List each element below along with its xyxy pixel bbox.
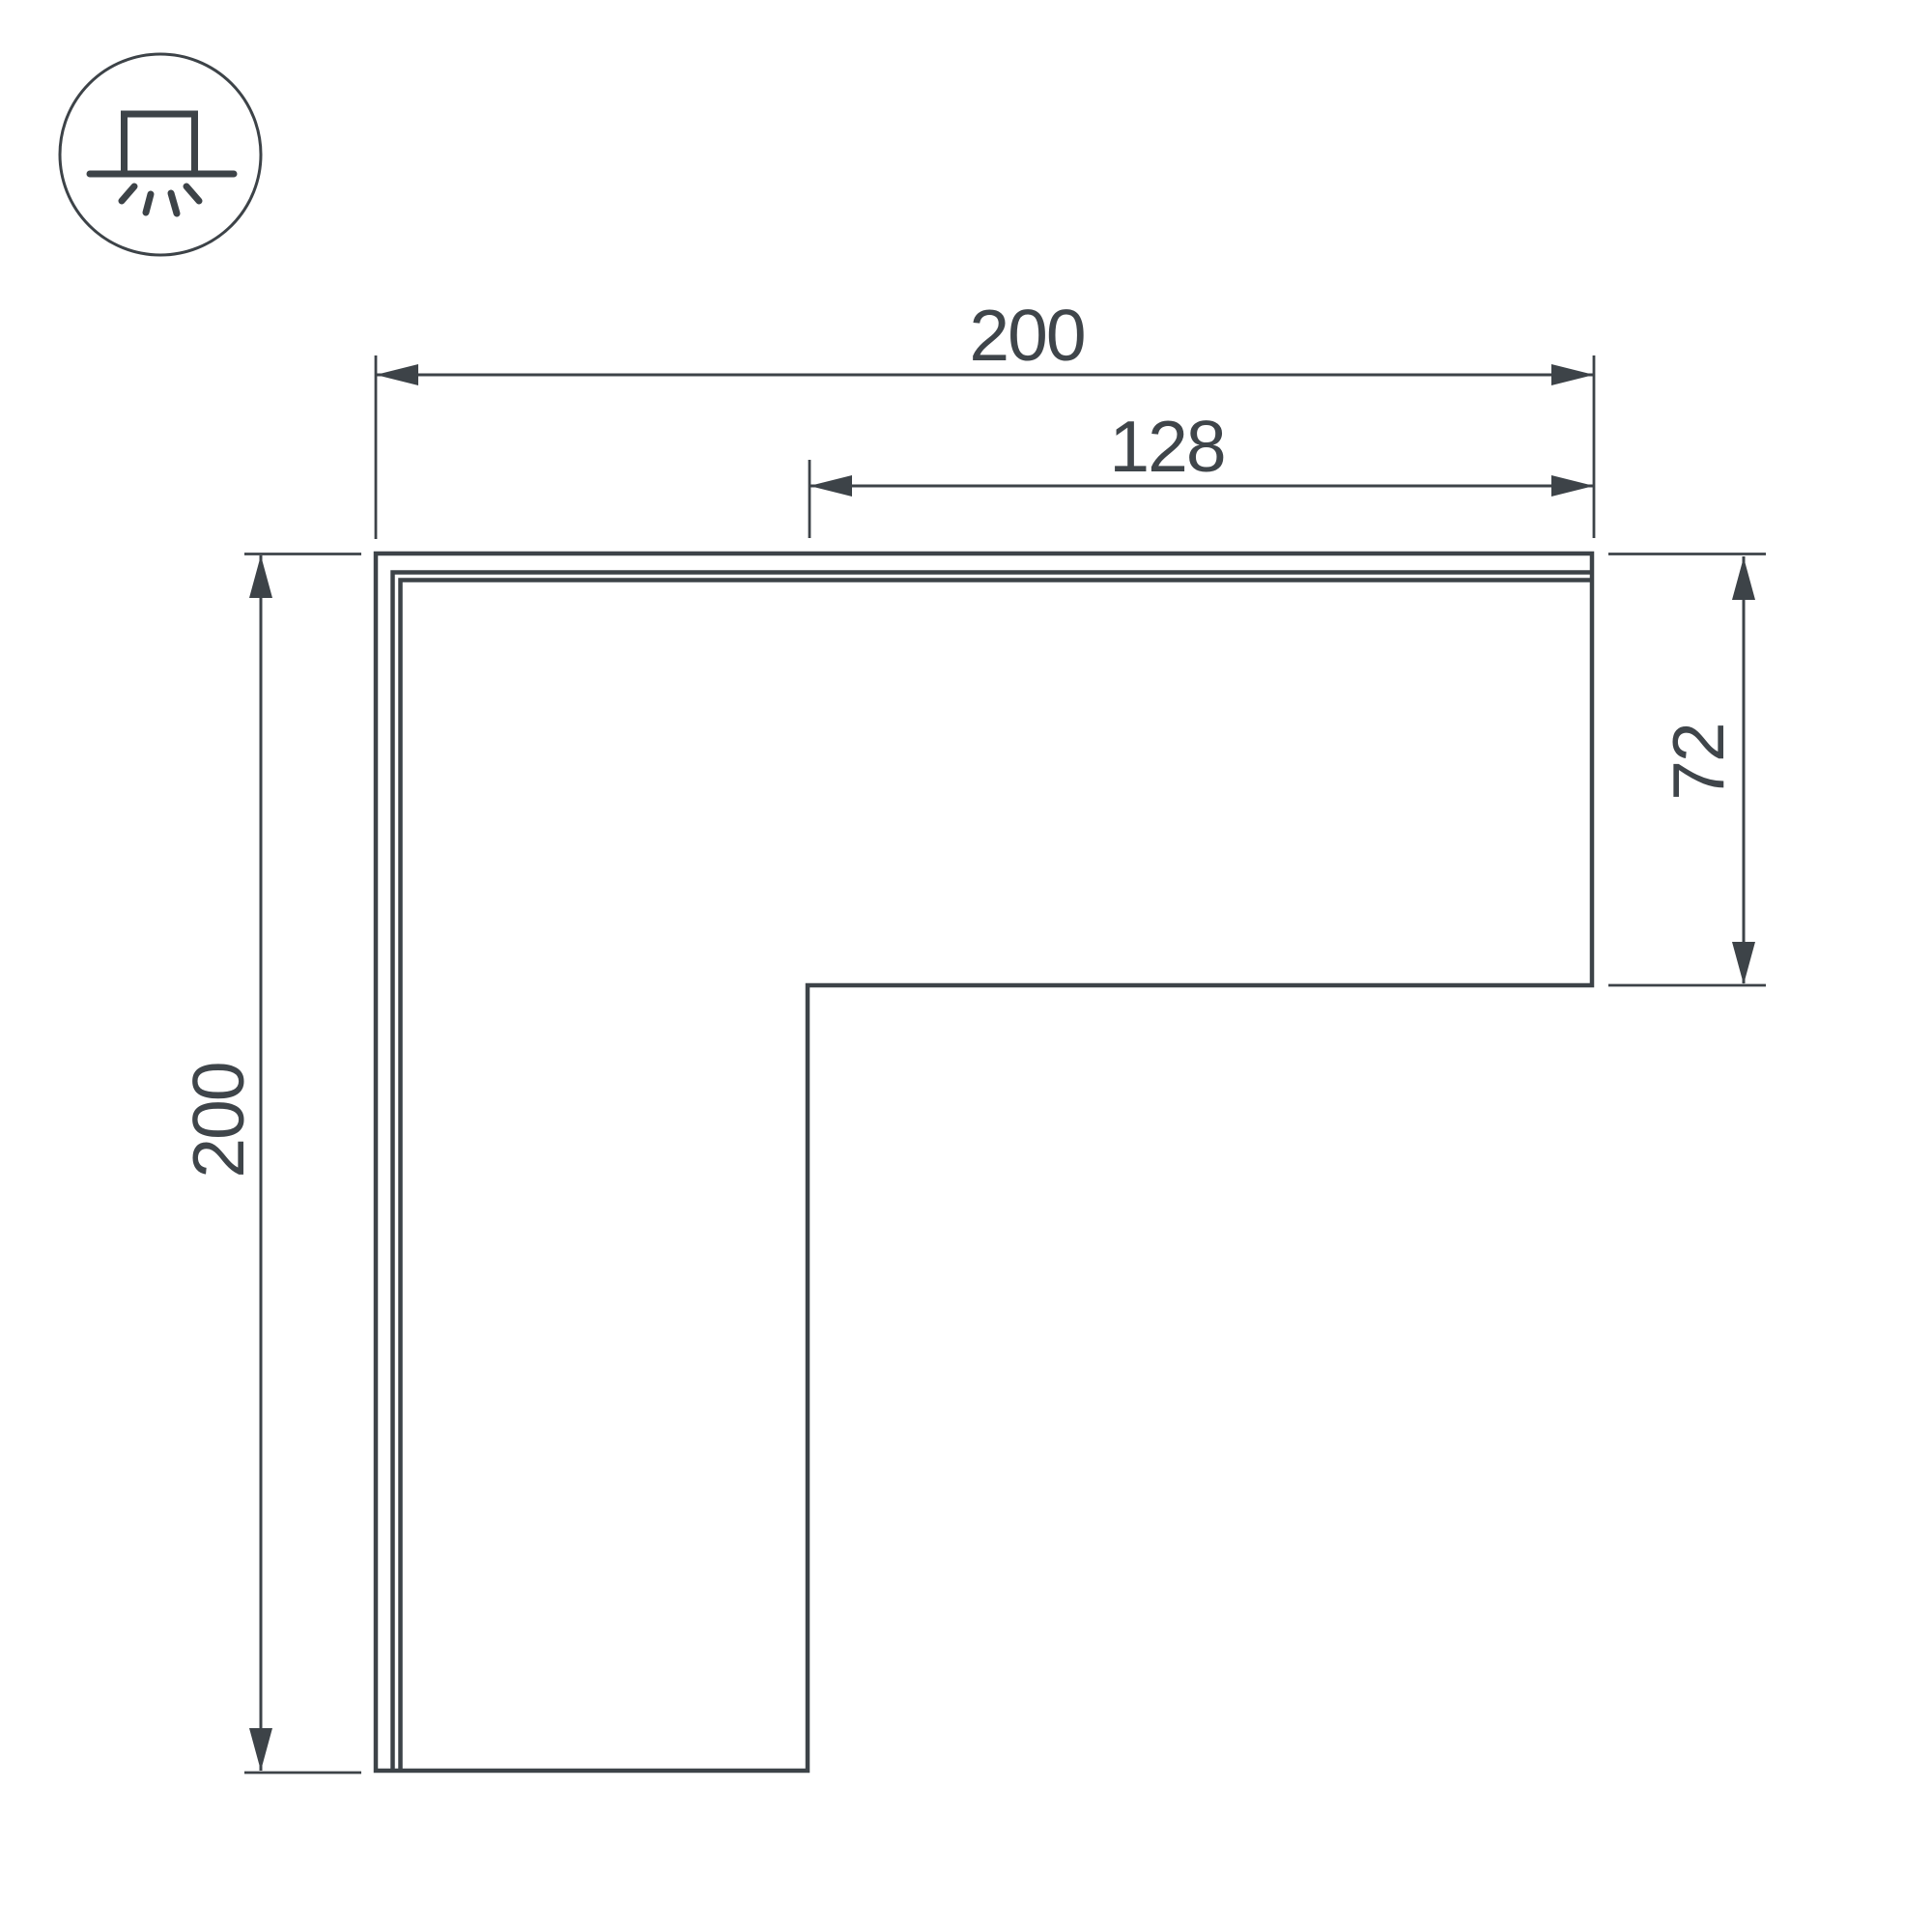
arrowhead-down-icon [249,1728,272,1771]
arrowhead-up-icon [1732,557,1755,600]
icon-light-ray [171,193,177,213]
icon-light-ray [122,186,134,201]
icon-light-ray [146,194,151,213]
technical-drawing-page: 200 128 200 72 [0,0,1932,1931]
profile-inner-contour-line [401,581,1591,1770]
icon-circle-border [60,54,261,255]
dimension-right-height: 72 [1608,554,1766,986]
dimension-label-left-height: 200 [178,1063,259,1178]
profile-body [376,554,1592,1771]
dimension-label-inner-width: 128 [1109,406,1224,487]
icon-luminaire-body [125,114,195,174]
arrowhead-up-icon [249,555,272,598]
arrowhead-down-icon [1732,942,1755,984]
arrowhead-right-icon [1551,364,1594,385]
icon-light-ray [186,186,199,201]
arrowhead-left-icon [376,364,418,385]
dimension-label-right-height: 72 [1658,724,1739,800]
dimension-top-width: 200 [376,295,1594,539]
arrowhead-left-icon [810,475,852,497]
profile-outer-contour [376,554,1592,1771]
technical-drawing-canvas: 200 128 200 72 [0,0,1932,1931]
dimension-inner-width: 128 [810,406,1594,538]
dimension-label-top-width: 200 [969,295,1084,376]
dimension-left-height: 200 [178,554,361,1774]
surface-mounted-light-icon [60,54,261,255]
arrowhead-right-icon [1551,475,1594,497]
profile-inner-contour-line [393,573,1591,1770]
